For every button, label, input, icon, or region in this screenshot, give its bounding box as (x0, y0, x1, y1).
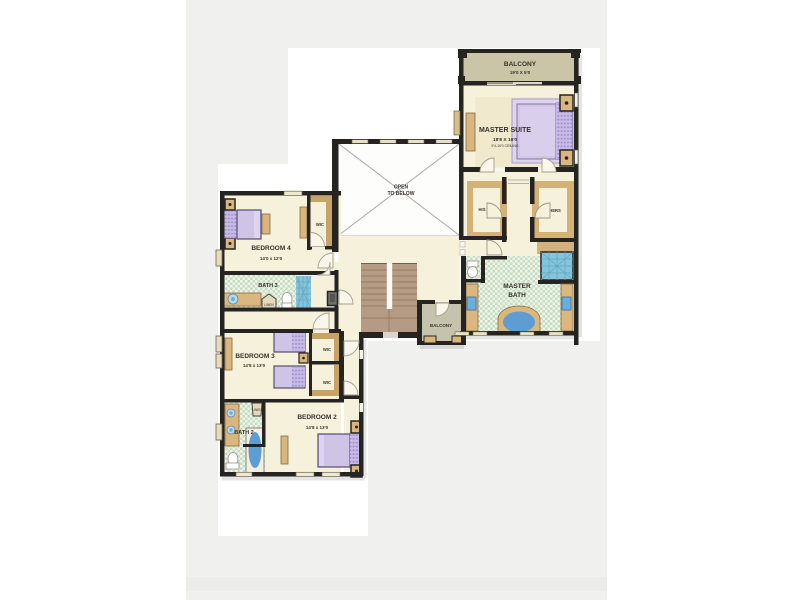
svg-text:LINEN: LINEN (252, 408, 262, 412)
svg-text:18'8 X 16'0: 18'8 X 16'0 (493, 137, 517, 143)
svg-text:BEDROOM 2: BEDROOM 2 (297, 414, 337, 421)
svg-text:BATH 3: BATH 3 (258, 283, 277, 289)
svg-text:BALCONY: BALCONY (504, 61, 537, 68)
svg-text:14'8 x 13'0: 14'8 x 13'0 (306, 425, 329, 430)
svg-text:14'8 x 13'0: 14'8 x 13'0 (243, 363, 266, 368)
svg-text:9'4-10'0 CEILING: 9'4-10'0 CEILING (491, 144, 518, 148)
svg-text:HIS: HIS (479, 207, 486, 212)
svg-text:BEDROOM 3: BEDROOM 3 (235, 353, 275, 360)
svg-text:BALCONY: BALCONY (430, 323, 452, 328)
svg-text:WIC: WIC (316, 222, 324, 227)
svg-text:HERS: HERS (549, 208, 561, 213)
svg-text:19'0 X 5'0: 19'0 X 5'0 (510, 70, 531, 75)
svg-text:WIC: WIC (323, 347, 331, 352)
svg-text:OPEN: OPEN (394, 185, 409, 191)
svg-text:MASTER: MASTER (503, 283, 531, 290)
svg-text:BEDROOM 4: BEDROOM 4 (251, 245, 291, 252)
svg-text:LINEN: LINEN (264, 303, 274, 307)
svg-text:14'0 x 12'0: 14'0 x 12'0 (260, 256, 283, 261)
svg-text:WIC: WIC (323, 380, 331, 385)
svg-text:BATH: BATH (508, 292, 526, 299)
svg-text:TO BELOW: TO BELOW (388, 191, 415, 197)
svg-text:MASTER SUITE: MASTER SUITE (479, 127, 531, 134)
svg-text:BATH 2: BATH 2 (234, 430, 253, 436)
